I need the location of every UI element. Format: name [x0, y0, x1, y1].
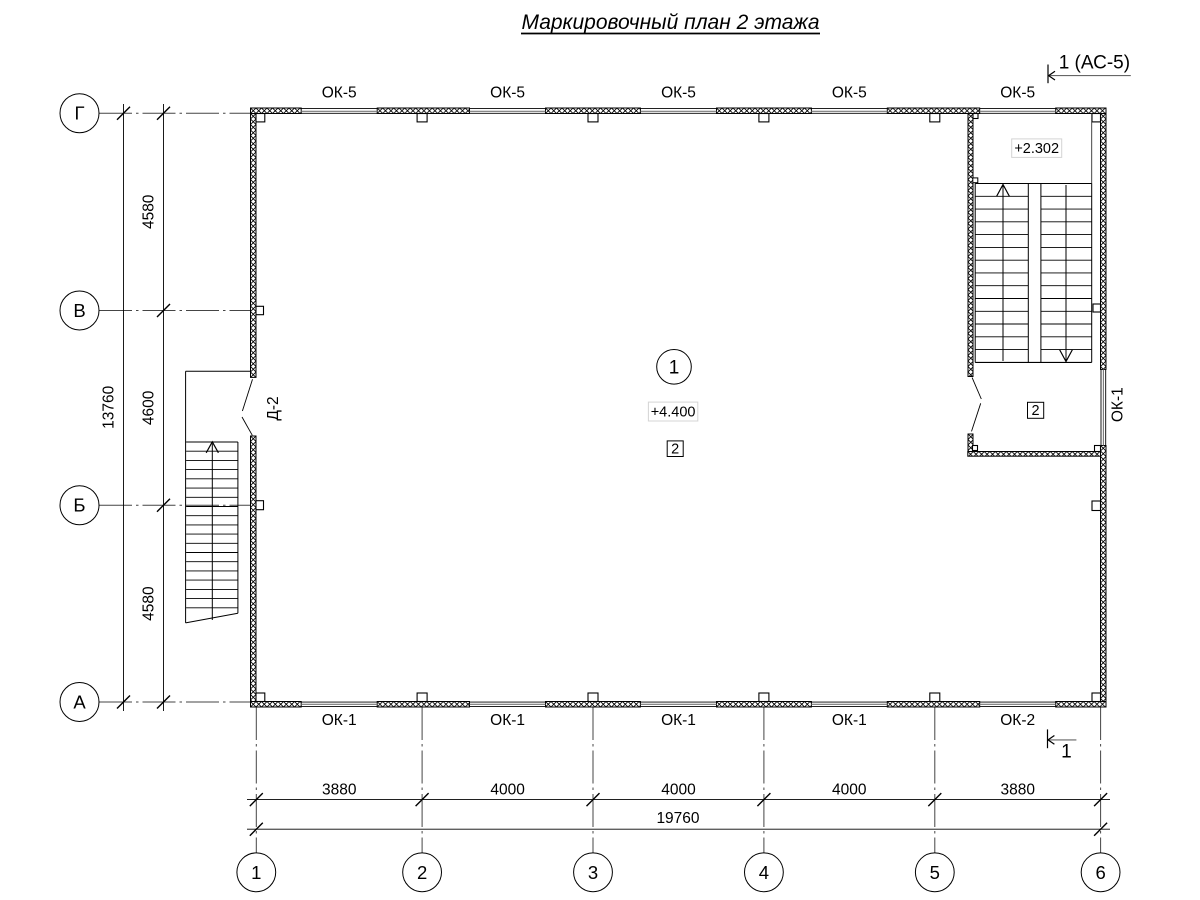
svg-text:ОК-1: ОК-1: [322, 712, 357, 729]
svg-text:Г: Г: [74, 103, 84, 124]
svg-text:1 (АС-5): 1 (АС-5): [1059, 53, 1130, 74]
svg-text:4600: 4600: [141, 390, 158, 425]
svg-text:4580: 4580: [141, 586, 158, 621]
svg-text:А: А: [73, 691, 86, 712]
svg-text:2: 2: [417, 862, 427, 883]
svg-text:3880: 3880: [322, 782, 357, 799]
svg-text:2: 2: [671, 442, 679, 458]
svg-text:ОК-5: ОК-5: [322, 85, 357, 102]
svg-text:ОК-1: ОК-1: [832, 712, 867, 729]
svg-text:2: 2: [1032, 403, 1040, 419]
svg-text:ОК-1: ОК-1: [661, 712, 696, 729]
svg-text:Д-2: Д-2: [265, 396, 282, 420]
svg-text:3: 3: [588, 862, 598, 883]
svg-text:4: 4: [759, 862, 769, 883]
svg-text:1: 1: [251, 862, 261, 883]
svg-text:3880: 3880: [1000, 782, 1035, 799]
svg-text:5: 5: [930, 862, 940, 883]
svg-text:Маркировочный план 2 этажа: Маркировочный план 2 этажа: [521, 11, 819, 34]
svg-text:ОК-5: ОК-5: [661, 85, 696, 102]
svg-text:13760: 13760: [100, 385, 117, 428]
svg-text:ОК-1: ОК-1: [1109, 387, 1126, 422]
svg-text:ОК-5: ОК-5: [490, 85, 525, 102]
svg-text:+4.400: +4.400: [651, 404, 696, 420]
svg-text:4000: 4000: [832, 782, 867, 799]
svg-text:4580: 4580: [141, 194, 158, 229]
svg-text:19760: 19760: [656, 810, 699, 827]
svg-text:4000: 4000: [490, 782, 525, 799]
svg-text:ОК-2: ОК-2: [1000, 712, 1035, 729]
svg-text:В: В: [73, 300, 85, 321]
svg-text:6: 6: [1095, 862, 1105, 883]
svg-text:+2.302: +2.302: [1014, 141, 1059, 157]
svg-text:Б: Б: [73, 495, 85, 516]
svg-text:4000: 4000: [661, 782, 696, 799]
svg-text:ОК-5: ОК-5: [1000, 85, 1035, 102]
svg-text:ОК-5: ОК-5: [832, 85, 867, 102]
svg-text:ОК-1: ОК-1: [490, 712, 525, 729]
svg-text:1: 1: [1061, 741, 1072, 762]
svg-text:1: 1: [669, 357, 680, 378]
